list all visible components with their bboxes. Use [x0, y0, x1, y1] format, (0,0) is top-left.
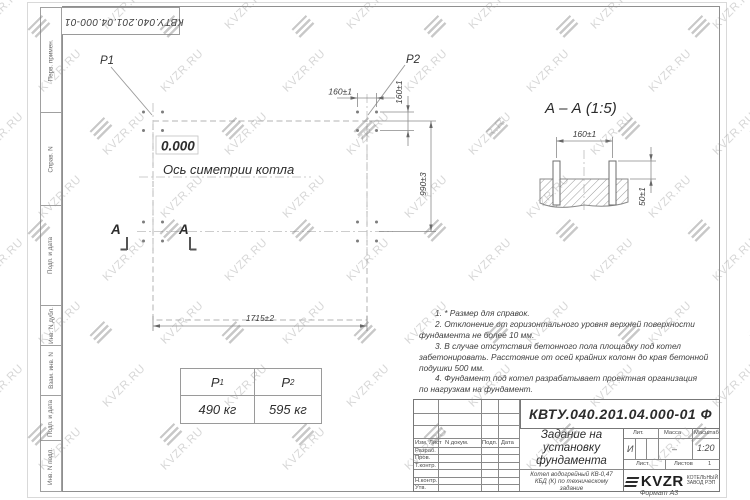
- load-table: P1 P2 490 кг 595 кг: [180, 368, 322, 424]
- tb-header-podp: Подп.: [482, 440, 497, 446]
- kvzr-logo-caption: КОТЕЛЬНЫЙ ЗАВОД РЭП: [687, 476, 718, 487]
- note-line: 3. В случае отсутствия бетонного пола пл…: [419, 341, 729, 352]
- elevation-label: 0.000: [161, 139, 195, 154]
- title-block-right-section: Лит. Масса Масштаб И – 1:20 Лист Листов …: [623, 428, 720, 491]
- company-logo: KVZR КОТЕЛЬНЫЙ ЗАВОД РЭП: [624, 469, 720, 492]
- kvzr-logo-text: KVZR: [641, 473, 684, 490]
- arrow: [429, 225, 432, 232]
- tb-header-ndokum: N докум.: [445, 440, 468, 446]
- p2-label: P2: [406, 54, 421, 66]
- arrow: [406, 105, 409, 112]
- tb-line: [646, 438, 647, 459]
- tb-lit-label: Лит.: [633, 430, 644, 436]
- tb-line: [624, 459, 720, 460]
- note-line: 1. * Размер для справок.: [419, 308, 729, 319]
- tb-line: [635, 438, 636, 459]
- section-title: А – А (1:5): [544, 100, 617, 117]
- arrow: [406, 131, 409, 138]
- arrow: [153, 324, 160, 327]
- load-table-header-p2: P2: [254, 369, 321, 396]
- anchor-bolt-left: [553, 161, 560, 205]
- tb-sheets-value: 1: [708, 461, 711, 467]
- arrow: [351, 96, 358, 99]
- tb-scale-value: 1:20: [697, 443, 715, 453]
- tb-header-izm: Изм. Лист: [415, 440, 442, 446]
- arrow: [649, 154, 652, 161]
- drawing-sheet: КВТУ.040.201.04.000-01 Ф Перв. примен. С…: [0, 0, 750, 500]
- tb-line: [414, 484, 519, 485]
- tb-line: [414, 413, 519, 414]
- plan-view: P1 P2 160±1 160±1: [100, 54, 436, 331]
- arrow: [557, 139, 564, 142]
- dim-text-160-vert: 160±1: [394, 80, 404, 104]
- tb-line: [414, 469, 519, 470]
- tb-mass-label: Масса: [664, 430, 681, 436]
- section-view: А – А (1:5) 160±1 50±1: [540, 100, 656, 213]
- section-letter-left: А: [110, 222, 121, 237]
- tb-header-data: Дата: [501, 440, 514, 446]
- axis-label: Ось симетрии котла: [163, 162, 294, 177]
- note-line: 4. Фундамент под котел разрабатывает про…: [419, 373, 729, 384]
- technical-notes: 1. * Размер для справок. 2. Отклонение о…: [419, 308, 729, 395]
- load-table-value-p1: 490 кг: [181, 396, 254, 423]
- note-line: фундамента не более 10 мм.: [419, 330, 729, 341]
- title-block-doc-title: Задание на установку фундамента: [520, 428, 623, 469]
- dim-text-990: 990±3: [418, 172, 428, 196]
- arrow: [649, 179, 652, 186]
- tb-line: [665, 459, 666, 469]
- p1-label: P1: [100, 55, 114, 67]
- tb-line: [414, 438, 519, 439]
- load-table-header-p1: P1: [181, 369, 254, 396]
- format-label: Формат А3: [600, 490, 718, 497]
- dim-text-1715: 1715±2: [246, 313, 275, 323]
- tb-mass-value: –: [672, 444, 677, 454]
- tb-sheets-label: Листов: [674, 461, 693, 467]
- tb-row-tkontr: Т.контр.: [415, 463, 436, 469]
- tb-line: [658, 428, 659, 459]
- title-block-designation: КВТУ.040.201.04.000-01 Ф: [520, 400, 720, 429]
- note-line: забетонировать. Расстояние от осей крайн…: [419, 352, 729, 363]
- p1-leader: [111, 67, 152, 115]
- tb-line: [692, 428, 693, 459]
- load-table-value-p2: 595 кг: [254, 396, 321, 423]
- dim-text-section-50: 50±1: [637, 187, 647, 206]
- tb-line: [624, 438, 720, 439]
- tb-line: [414, 425, 519, 426]
- title-block: КВТУ.040.201.04.000-01 Ф Задание на уста…: [413, 399, 720, 492]
- tb-row-nkontr: Н.контр.: [415, 478, 437, 484]
- anchor-bolt-right: [609, 161, 616, 205]
- note-line: 2. Отклонение от горизонтального уровня …: [419, 319, 729, 330]
- arrow: [429, 121, 432, 128]
- tb-row-razrab: Разраб.: [415, 448, 436, 454]
- note-line: подушки 500 мм.: [419, 363, 729, 374]
- arrow: [606, 139, 613, 142]
- dim-text-section-160: 160±1: [573, 129, 597, 139]
- note-line: по нагрузкам на фундамент.: [419, 384, 729, 395]
- kvzr-logo-icon: [624, 475, 640, 487]
- tb-row-utv: Утв.: [415, 485, 426, 491]
- dim-section-bolt-spacing: [557, 137, 613, 158]
- tb-row-prov: Пров.: [415, 455, 430, 461]
- tb-line: [519, 400, 520, 491]
- tb-sheet-label: Лист: [636, 461, 649, 467]
- arrow: [360, 324, 367, 327]
- tb-scale-label: Масштаб: [694, 430, 719, 436]
- title-block-doc-subtitle: Котел водогрейный КВ-0,47 КБД (К) по тех…: [520, 469, 623, 492]
- dim-text-160-top: 160±1: [328, 87, 352, 97]
- tb-lit-value: И: [627, 444, 633, 454]
- section-letter-right: А: [178, 222, 189, 237]
